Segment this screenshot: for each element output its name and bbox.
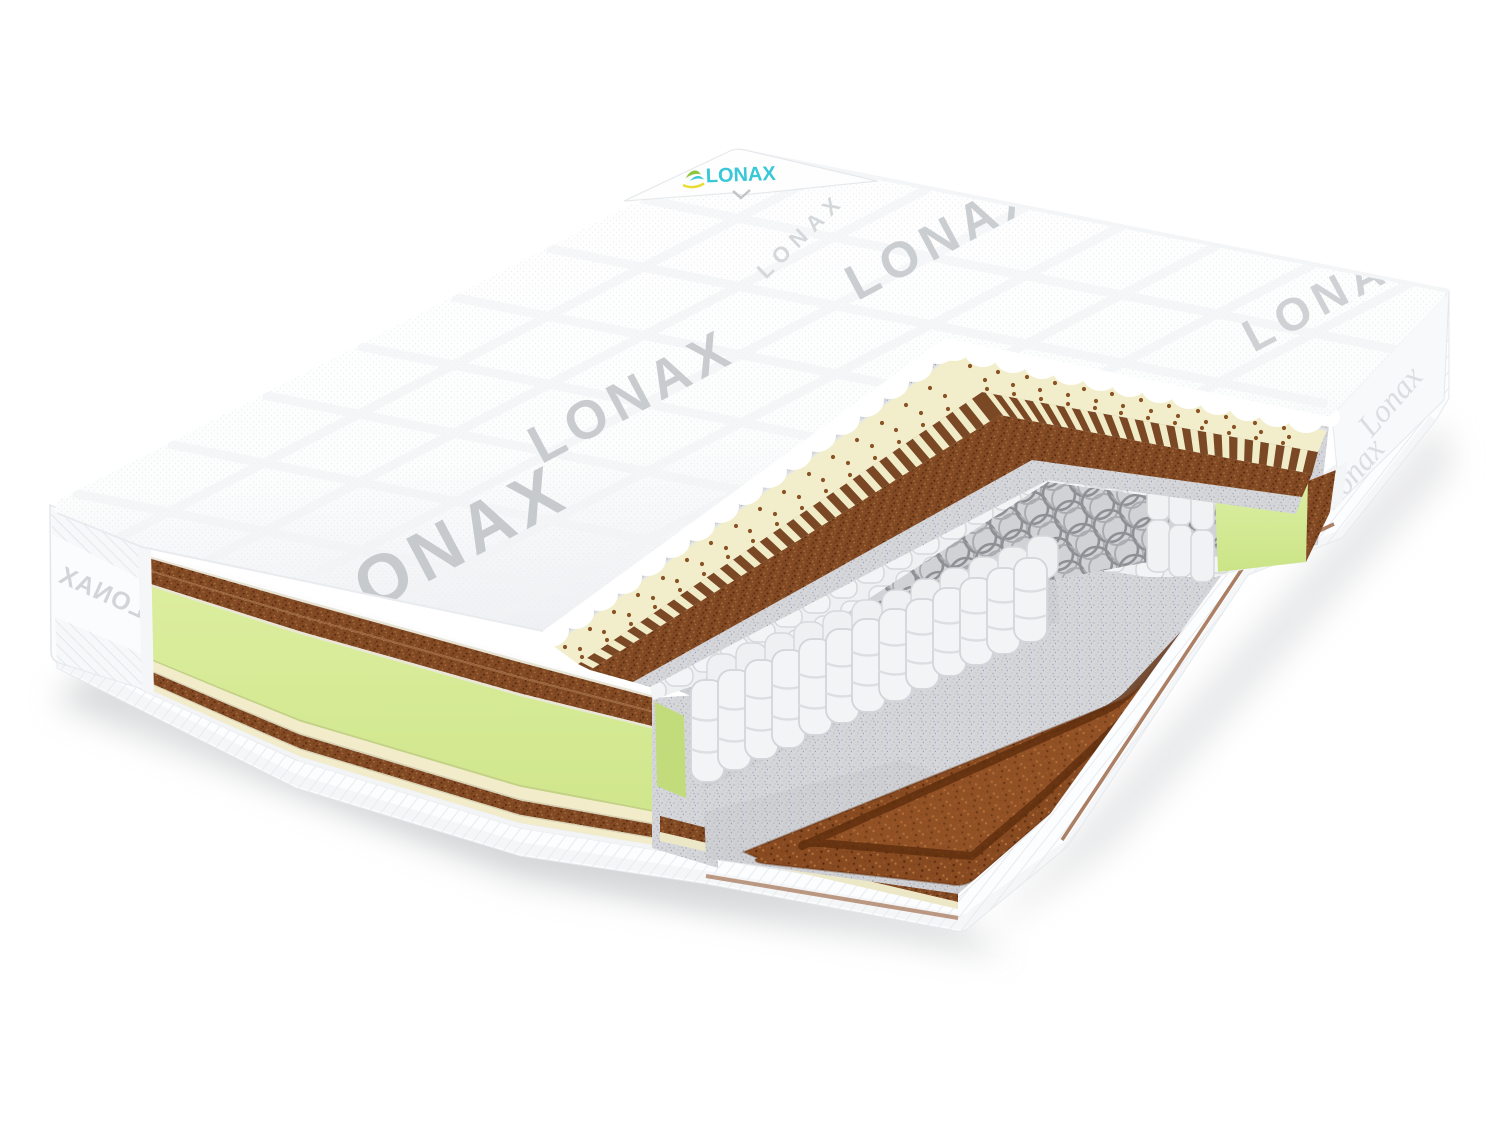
svg-text:LONAX: LONAX bbox=[705, 163, 776, 187]
